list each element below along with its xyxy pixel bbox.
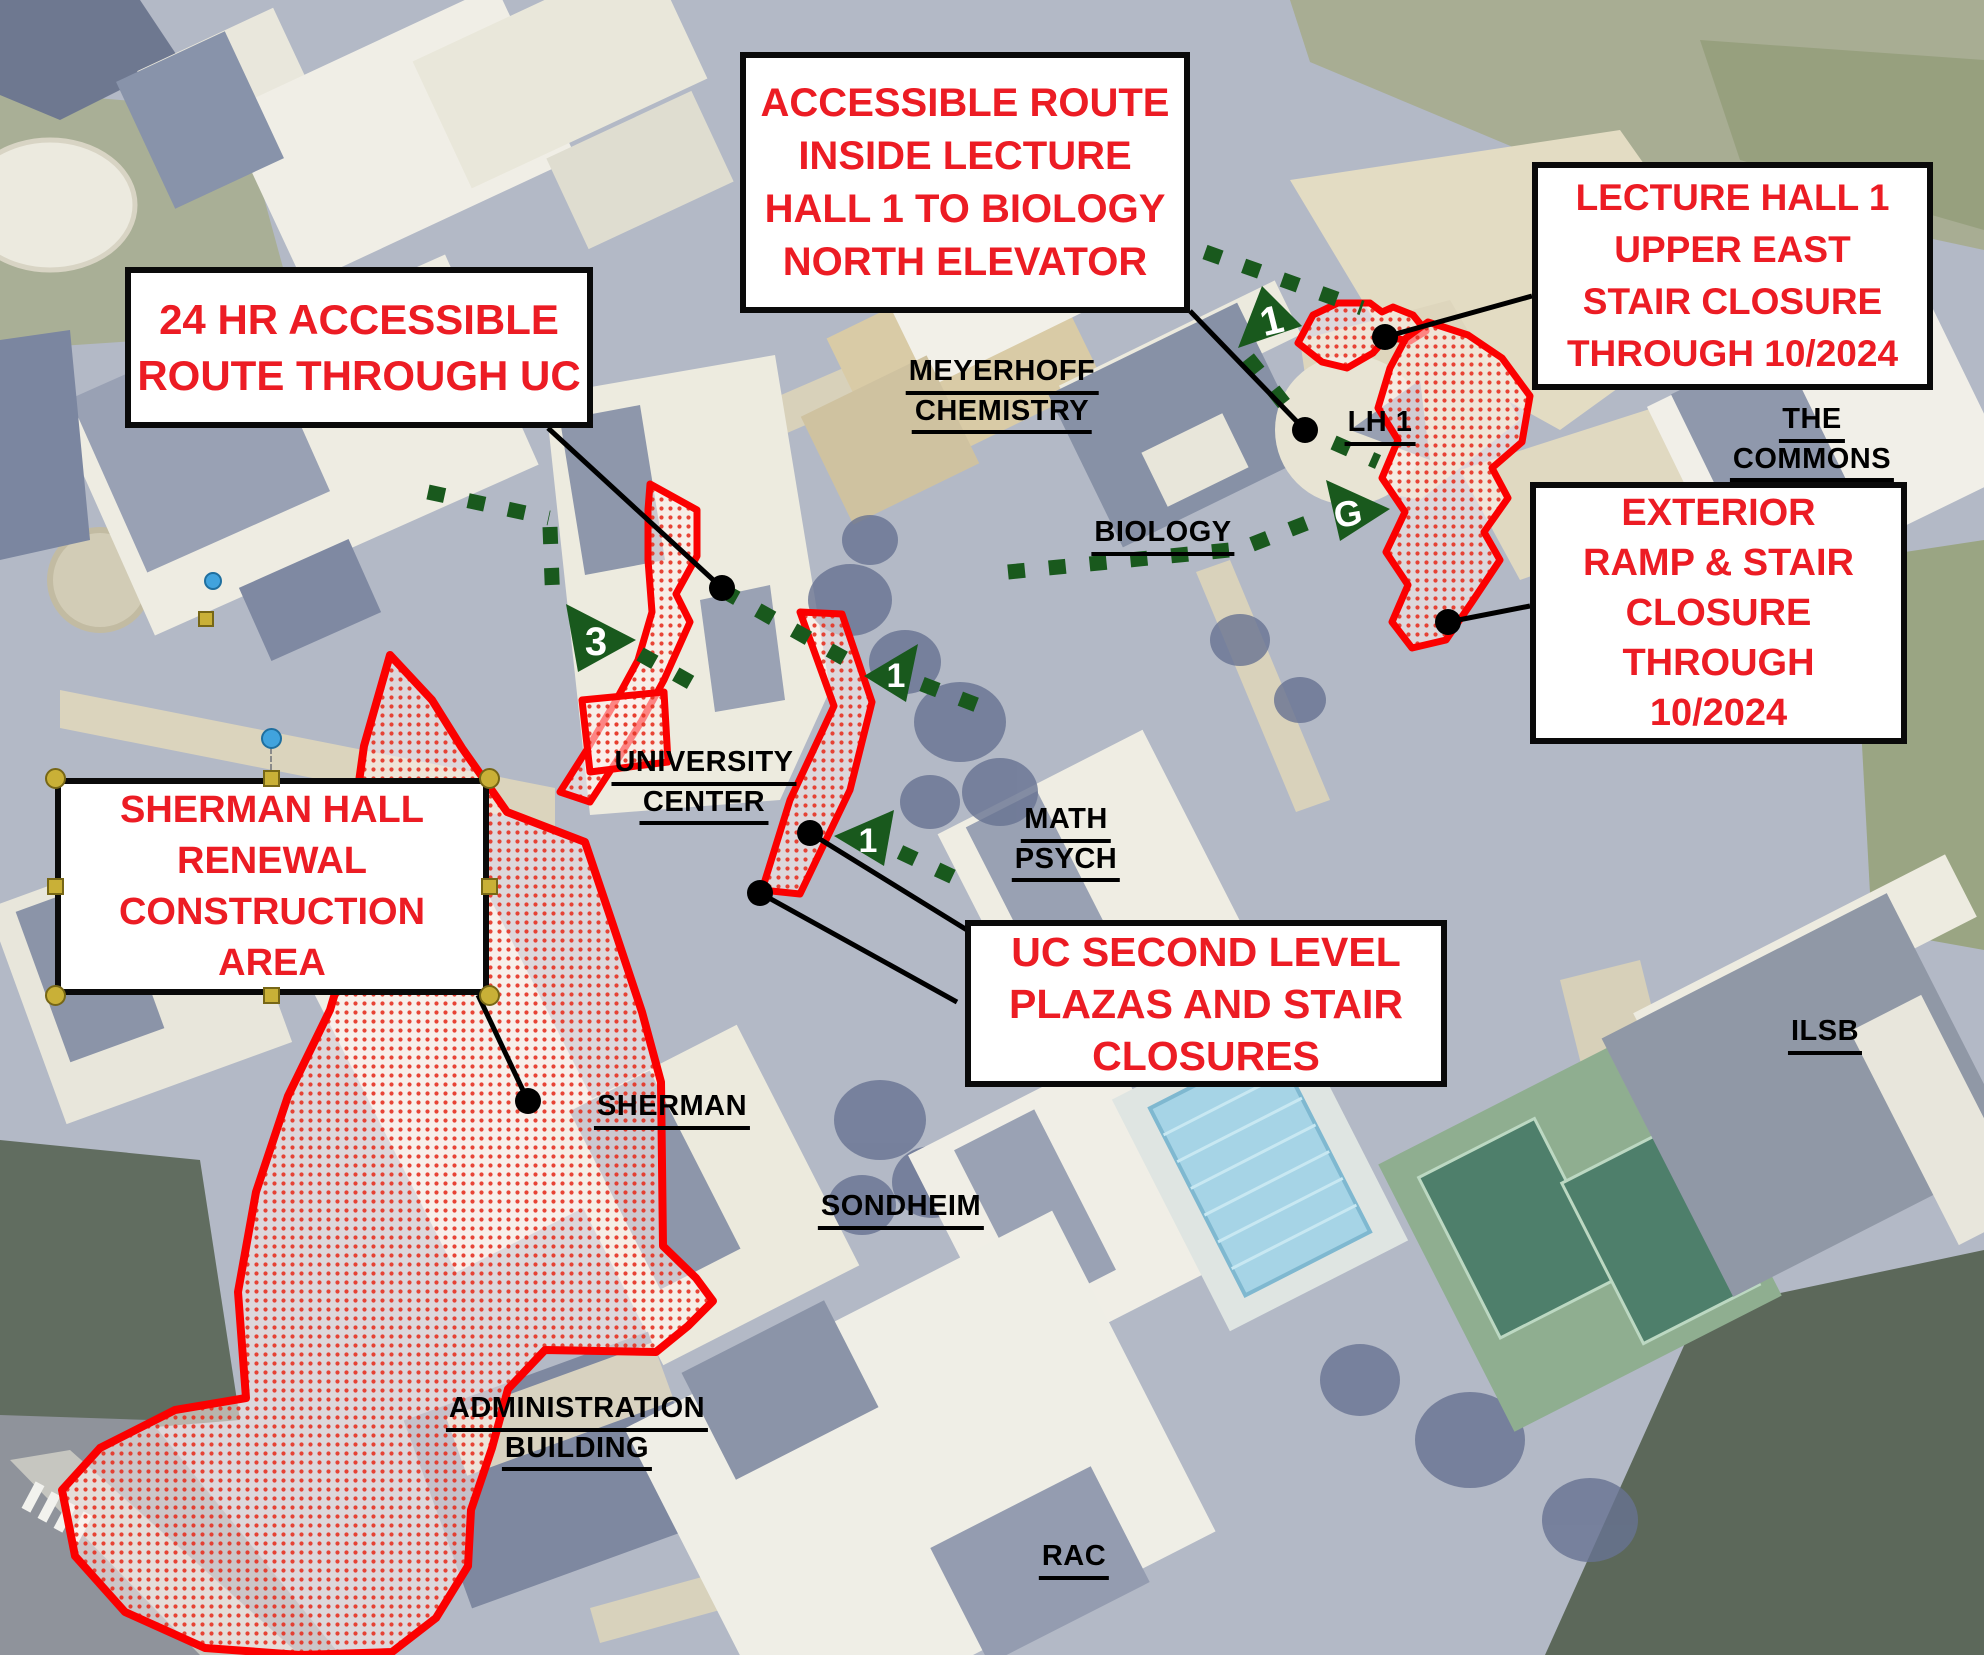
label-line: CHEMISTRY (912, 395, 1092, 435)
tree (834, 1080, 926, 1160)
label-line: BUILDING (502, 1432, 652, 1472)
callout-text-line: UC SECOND LEVEL (1011, 926, 1401, 978)
callout-text-line: 10/2024 (1650, 688, 1787, 738)
stray-yellow-handle[interactable] (199, 612, 213, 626)
callout-text-line: UPPER EAST (1614, 224, 1850, 276)
label-line: ILSB (1788, 1015, 1862, 1055)
callout-text-line: RENEWAL (177, 836, 367, 887)
label-sondheim: SONDHEIM (818, 1190, 984, 1230)
leader-dot (1292, 417, 1318, 443)
resize-handle-bottom-left[interactable] (45, 985, 66, 1006)
label-line: SONDHEIM (818, 1190, 984, 1230)
callout-text-line: RAMP & STAIR (1583, 538, 1854, 588)
callout-text-line: STAIR CLOSURE (1583, 276, 1882, 328)
resize-handle-top-right[interactable] (479, 768, 500, 789)
stray-blue-handle[interactable] (205, 573, 221, 589)
label-biology: BIOLOGY (1091, 516, 1234, 556)
label-meyerhoff-chemistry: MEYERHOFF CHEMISTRY (906, 355, 1099, 434)
callout-text-line: LECTURE HALL 1 (1576, 172, 1890, 224)
tree (1320, 1344, 1400, 1416)
label-line: LH 1 (1345, 406, 1416, 446)
label-administration-building: ADMINISTRATION BUILDING (446, 1392, 708, 1471)
label-line: SHERMAN (594, 1090, 750, 1130)
route-marker-label: 1 (887, 657, 906, 695)
callout-24hr-route[interactable]: 24 HR ACCESSIBLE ROUTE THROUGH UC (125, 267, 593, 428)
resize-handle-bottom-right[interactable] (479, 985, 500, 1006)
leader-dot (515, 1088, 541, 1114)
route-marker-label: 3 (585, 620, 607, 664)
label-line: THE (1779, 403, 1845, 443)
label-line: RAC (1039, 1540, 1109, 1580)
label-line: MATH (1021, 803, 1111, 843)
callout-text-line: THROUGH (1622, 638, 1814, 688)
resize-handle-middle-right[interactable] (481, 878, 498, 895)
route-marker-label: 1 (859, 822, 878, 860)
callout-lh1-stair-closure[interactable]: LECTURE HALL 1 UPPER EAST STAIR CLOSURE … (1532, 162, 1933, 390)
tree (1210, 614, 1270, 666)
resize-handle-middle-left[interactable] (47, 878, 64, 895)
callout-exterior-ramp-closure[interactable]: EXTERIOR RAMP & STAIR CLOSURE THROUGH 10… (1530, 482, 1907, 744)
callout-text-line: SHERMAN HALL (120, 785, 424, 836)
leader-dot (1372, 324, 1398, 350)
label-line: CENTER (640, 786, 768, 826)
resize-handle-bottom-middle[interactable] (263, 987, 280, 1004)
leader-dot (1435, 609, 1461, 635)
label-math-psych: MATH PSYCH (1012, 803, 1120, 882)
label-sherman: SHERMAN (594, 1090, 750, 1130)
callout-text-line: NORTH ELEVATOR (783, 236, 1147, 289)
label-line: BIOLOGY (1091, 516, 1234, 556)
callout-text-line: INSIDE LECTURE (798, 130, 1131, 183)
leader-dot (797, 820, 823, 846)
rotation-handle[interactable] (261, 728, 282, 749)
callout-text-line: ROUTE THROUGH UC (137, 348, 580, 404)
label-line: MEYERHOFF (906, 355, 1099, 395)
label-line: PSYCH (1012, 843, 1120, 883)
resize-handle-top-middle[interactable] (263, 770, 280, 787)
label-the-commons: THE COMMONS (1730, 403, 1894, 482)
callout-text-line: CLOSURES (1092, 1030, 1320, 1082)
tree (1274, 677, 1326, 723)
resize-handle-top-left[interactable] (45, 768, 66, 789)
callout-text-line: HALL 1 TO BIOLOGY (765, 183, 1166, 236)
building-roof (700, 585, 785, 712)
callout-text-line: 24 HR ACCESSIBLE (159, 292, 559, 348)
callout-text-line: AREA (218, 938, 326, 989)
callout-text-line: PLAZAS AND STAIR (1009, 978, 1403, 1030)
label-line: UNIVERSITY (611, 746, 796, 786)
label-university-center: UNIVERSITY CENTER (611, 746, 796, 825)
callout-text-line: CONSTRUCTION (119, 887, 425, 938)
label-rac: RAC (1039, 1540, 1109, 1580)
callout-text-line: CLOSURE (1626, 588, 1812, 638)
label-ilsb: ILSB (1788, 1015, 1862, 1055)
leader-dot (747, 880, 773, 906)
callout-text-line: ACCESSIBLE ROUTE (761, 77, 1170, 130)
callout-uc-closures[interactable]: UC SECOND LEVEL PLAZAS AND STAIR CLOSURE… (965, 920, 1447, 1087)
label-line: ADMINISTRATION (446, 1392, 708, 1432)
callout-sherman-construction[interactable]: SHERMAN HALL RENEWAL CONSTRUCTION AREA (55, 778, 489, 995)
label-line: COMMONS (1730, 443, 1894, 483)
callout-text-line: EXTERIOR (1621, 488, 1815, 538)
callout-accessible-route-lh1[interactable]: ACCESSIBLE ROUTE INSIDE LECTURE HALL 1 T… (740, 52, 1190, 313)
campus-map-canvas: 1 G 3 1 1 MEYERHOFF CHEMISTRY THE COMMON (0, 0, 1984, 1655)
label-lh1: LH 1 (1345, 406, 1416, 446)
leader-dot (709, 575, 735, 601)
tree (842, 515, 898, 565)
tree (900, 775, 960, 829)
callout-text-line: THROUGH 10/2024 (1567, 328, 1898, 380)
tree (1542, 1478, 1638, 1562)
